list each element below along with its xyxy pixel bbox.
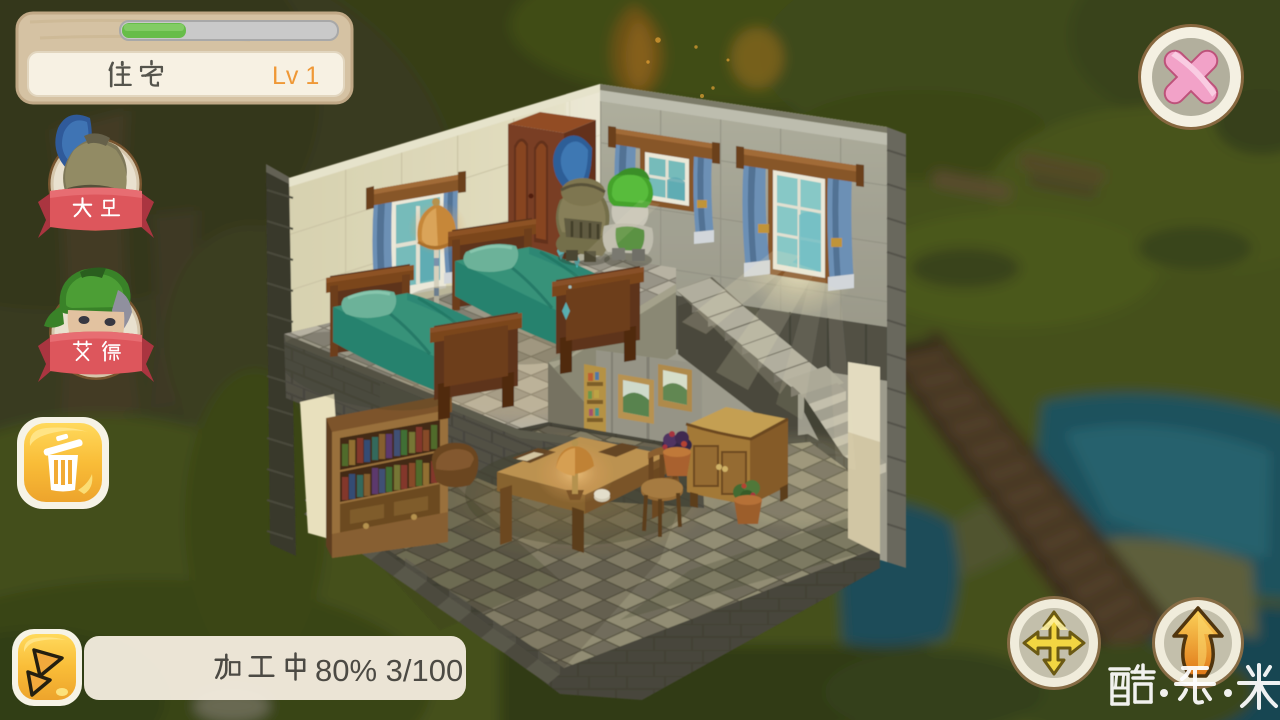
svg-text:80% 3/100: 80% 3/100	[315, 653, 463, 688]
svg-text:Lv 1: Lv 1	[272, 62, 319, 90]
